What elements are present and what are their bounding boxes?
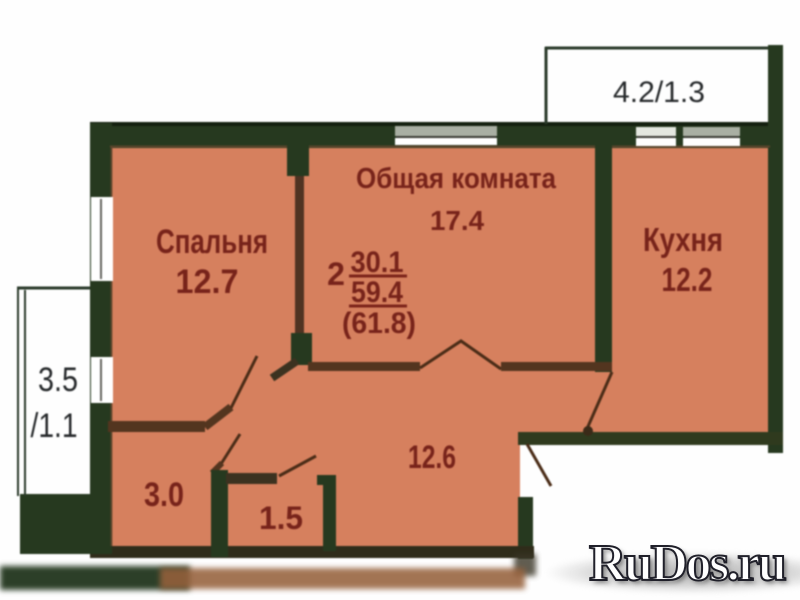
svg-text:4.2/1.3: 4.2/1.3 — [613, 76, 705, 109]
svg-text:(61.8): (61.8) — [342, 307, 416, 340]
svg-text:1.5: 1.5 — [259, 500, 303, 536]
svg-text:/1.1: /1.1 — [31, 407, 78, 445]
svg-text:3.5: 3.5 — [38, 361, 78, 399]
svg-text:12.6: 12.6 — [408, 439, 456, 475]
svg-text:30.1: 30.1 — [351, 246, 404, 279]
svg-text:12.2: 12.2 — [662, 261, 713, 298]
svg-text:3.0: 3.0 — [144, 476, 184, 514]
svg-text:Кухня: Кухня — [643, 221, 723, 258]
svg-text:12.7: 12.7 — [176, 263, 239, 301]
svg-text:Спальня: Спальня — [156, 223, 268, 261]
svg-text:59.4: 59.4 — [351, 276, 403, 309]
svg-text:2: 2 — [327, 256, 345, 292]
svg-text:Общая комната: Общая комната — [356, 163, 557, 195]
svg-text:17.4: 17.4 — [430, 205, 484, 236]
